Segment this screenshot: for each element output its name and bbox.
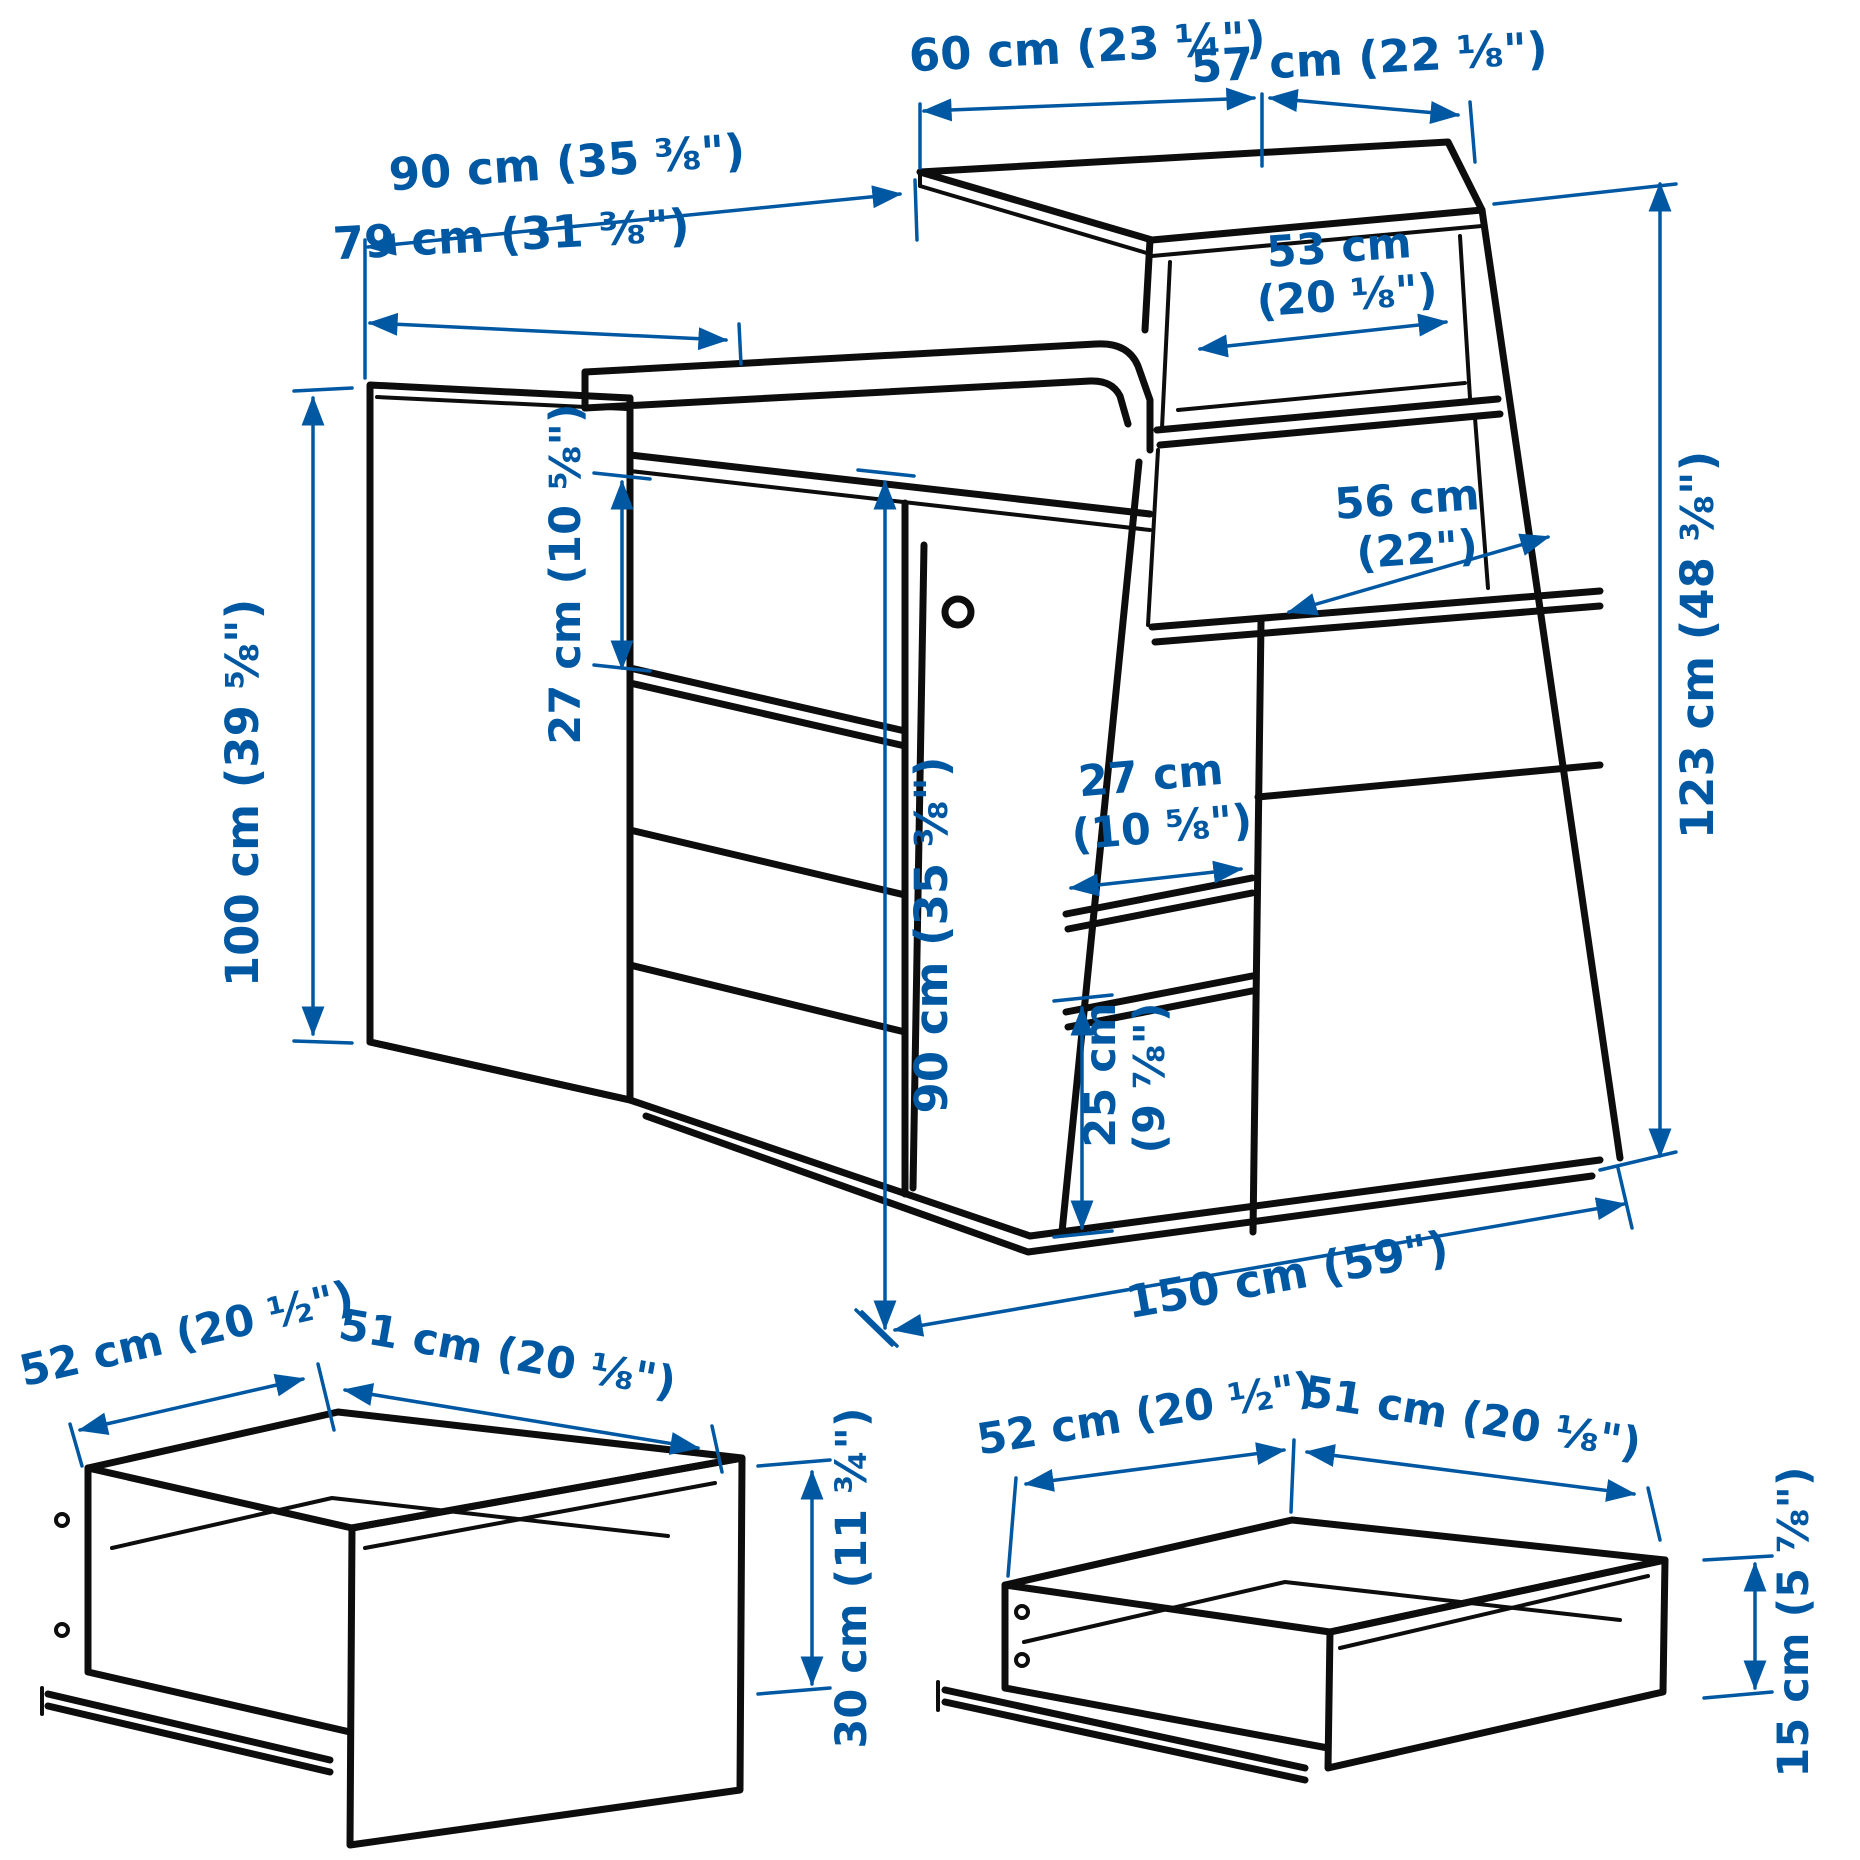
- drawer-left-screw-1: [56, 1514, 68, 1526]
- dim-ticks-123: [1494, 184, 1676, 1170]
- dim-ticks-100: [294, 388, 352, 1043]
- dim-ticks-15: [1704, 1556, 1772, 1698]
- under-table-shelf: [630, 668, 905, 746]
- dim-label-51-left: 51 cm (20 ⅛"): [335, 1300, 680, 1408]
- diagram-canvas: 60 cm (23 ¼") 57 cm (22 ⅛") 90 cm (35 ⅜"…: [0, 0, 1860, 1860]
- drawer-split-1: [630, 830, 905, 895]
- tabletop-front-edge: [630, 455, 1150, 514]
- dim-label-15: 15 cm (5 ⅞"): [1769, 1466, 1819, 1777]
- dim-label-25-line1: 25 cm: [1076, 1002, 1126, 1147]
- dim-label-56-line1: 56 cm: [1333, 470, 1481, 530]
- dim-line-52-right: [1026, 1450, 1284, 1484]
- dim-label-90-top: 90 cm (35 ⅜"): [387, 124, 747, 202]
- bottom-edge: [370, 1042, 1600, 1236]
- dim-line-60: [924, 98, 1254, 111]
- drawer-detail-right: 52 cm (20 ½") 51 cm (20 ⅛") 15 cm (5 ⅞"): [938, 1363, 1819, 1780]
- dim-label-51-right: 51 cm (20 ⅛"): [1300, 1367, 1645, 1470]
- changing-rail-top: [585, 344, 1150, 450]
- drawer-split-2: [630, 965, 905, 1032]
- main-unit-dimensions: 60 cm (23 ¼") 57 cm (22 ⅛") 90 cm (35 ⅜"…: [216, 11, 1724, 1346]
- drawer-left-side-wall: [88, 1468, 350, 1732]
- drawer-left-rail: [48, 1694, 330, 1772]
- dim-ticks-30: [758, 1460, 830, 1694]
- dim-label-56-line2: (22"): [1355, 521, 1480, 579]
- drawer-left-screw-2: [56, 1624, 68, 1636]
- right-drawer-split: [1258, 765, 1600, 797]
- dim-label-30: 30 cm (11 ¾"): [827, 1407, 877, 1748]
- dim-label-52-right: 52 cm (20 ½"): [973, 1363, 1318, 1466]
- dim-label-27-left: 27 cm (10 ⅝"): [541, 403, 591, 744]
- dim-label-27-mid-line1: 27 cm: [1076, 745, 1225, 807]
- dim-label-150: 150 cm (59"): [1122, 1220, 1452, 1329]
- column-divider: [1253, 622, 1261, 1232]
- dim-label-52-left: 52 cm (20 ½"): [15, 1272, 359, 1397]
- dim-ticks-52-right: [1008, 1440, 1294, 1576]
- dim-label-100: 100 cm (39 ⅝"): [216, 599, 269, 987]
- dim-line-79: [370, 323, 726, 340]
- dim-tick-57: [1470, 102, 1475, 162]
- dim-label-79: 79 cm (31 ⅜"): [332, 199, 691, 271]
- drawer-right-screw-1: [1016, 1606, 1028, 1618]
- dim-tick-79: [739, 324, 741, 364]
- cable-hole: [945, 599, 971, 625]
- drawer-right-panel-inner-edge: [1340, 1576, 1648, 1648]
- dim-tick-51-right: [1648, 1488, 1660, 1540]
- dim-label-25-line2: (9 ⅞"): [1125, 1002, 1175, 1153]
- side-panel: [370, 385, 630, 1100]
- shelf-2: [1152, 591, 1600, 642]
- dim-line-57: [1270, 98, 1458, 115]
- dim-line-52-left: [80, 1379, 303, 1430]
- dimension-diagram-page: 60 cm (23 ¼") 57 cm (22 ⅛") 90 cm (35 ⅜"…: [0, 0, 1860, 1860]
- drawer-left-opening: [88, 1412, 742, 1528]
- dim-line-53: [1200, 322, 1446, 349]
- changing-rail-bottom: [585, 381, 1128, 424]
- dim-label-123: 123 cm (48 ⅜"): [1671, 451, 1724, 839]
- right-outer-edge: [1482, 210, 1620, 1158]
- drawer-right-screw-2: [1016, 1654, 1028, 1666]
- drawer-detail-left: 52 cm (20 ½") 51 cm (20 ⅛") 30 cm (11 ¾"…: [15, 1272, 877, 1845]
- dim-label-90-front: 90 cm (35 ⅜"): [905, 757, 958, 1114]
- tabletop-thickness: [630, 471, 1150, 530]
